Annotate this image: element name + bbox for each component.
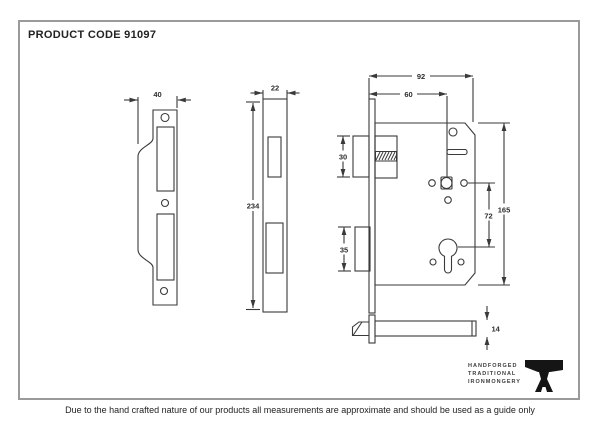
dim-label-case-thickness: 14 xyxy=(492,325,501,334)
dim-label-latch-height: 30 xyxy=(339,152,347,161)
dim-label-case-height: 165 xyxy=(498,205,511,214)
dim-label-deadbolt-height: 35 xyxy=(340,245,348,254)
lock-case xyxy=(375,123,475,285)
brand-logo-text: HANDFORGED TRADITIONAL IRONMONGERY xyxy=(468,362,520,386)
dim-label-forend-height: 234 xyxy=(247,202,260,211)
latch-bolt xyxy=(353,136,369,177)
lock-body-view: 92 60 30 35 xyxy=(335,71,514,314)
dim-label-strike-width: 40 xyxy=(153,90,161,99)
strike-plate-view: 40 xyxy=(124,90,191,305)
anvil-icon xyxy=(524,354,564,394)
faceplate-edge xyxy=(369,99,375,313)
dim-overall-depth xyxy=(369,76,473,122)
euro-cylinder-hole xyxy=(439,239,457,273)
latch-spring-hatch xyxy=(376,152,397,162)
dim-label-backset: 60 xyxy=(404,90,412,99)
disclaimer-text: Due to the hand crafted nature of our pr… xyxy=(0,405,600,415)
product-drawing-page: PRODUCT CODE 91097 40 xyxy=(0,0,600,425)
deadbolt xyxy=(355,227,370,271)
dim-label-centres: 72 xyxy=(484,211,492,220)
dim-label-forend-width: 22 xyxy=(271,84,279,93)
logo-line-1: HANDFORGED xyxy=(468,362,520,370)
dim-label-overall-depth: 92 xyxy=(417,72,425,81)
brand-logo: HANDFORGED TRADITIONAL IRONMONGERY xyxy=(468,352,576,396)
logo-line-2: TRADITIONAL xyxy=(468,370,520,378)
logo-line-3: IRONMONGERY xyxy=(468,378,520,386)
forend-view: 22 234 xyxy=(244,84,300,313)
